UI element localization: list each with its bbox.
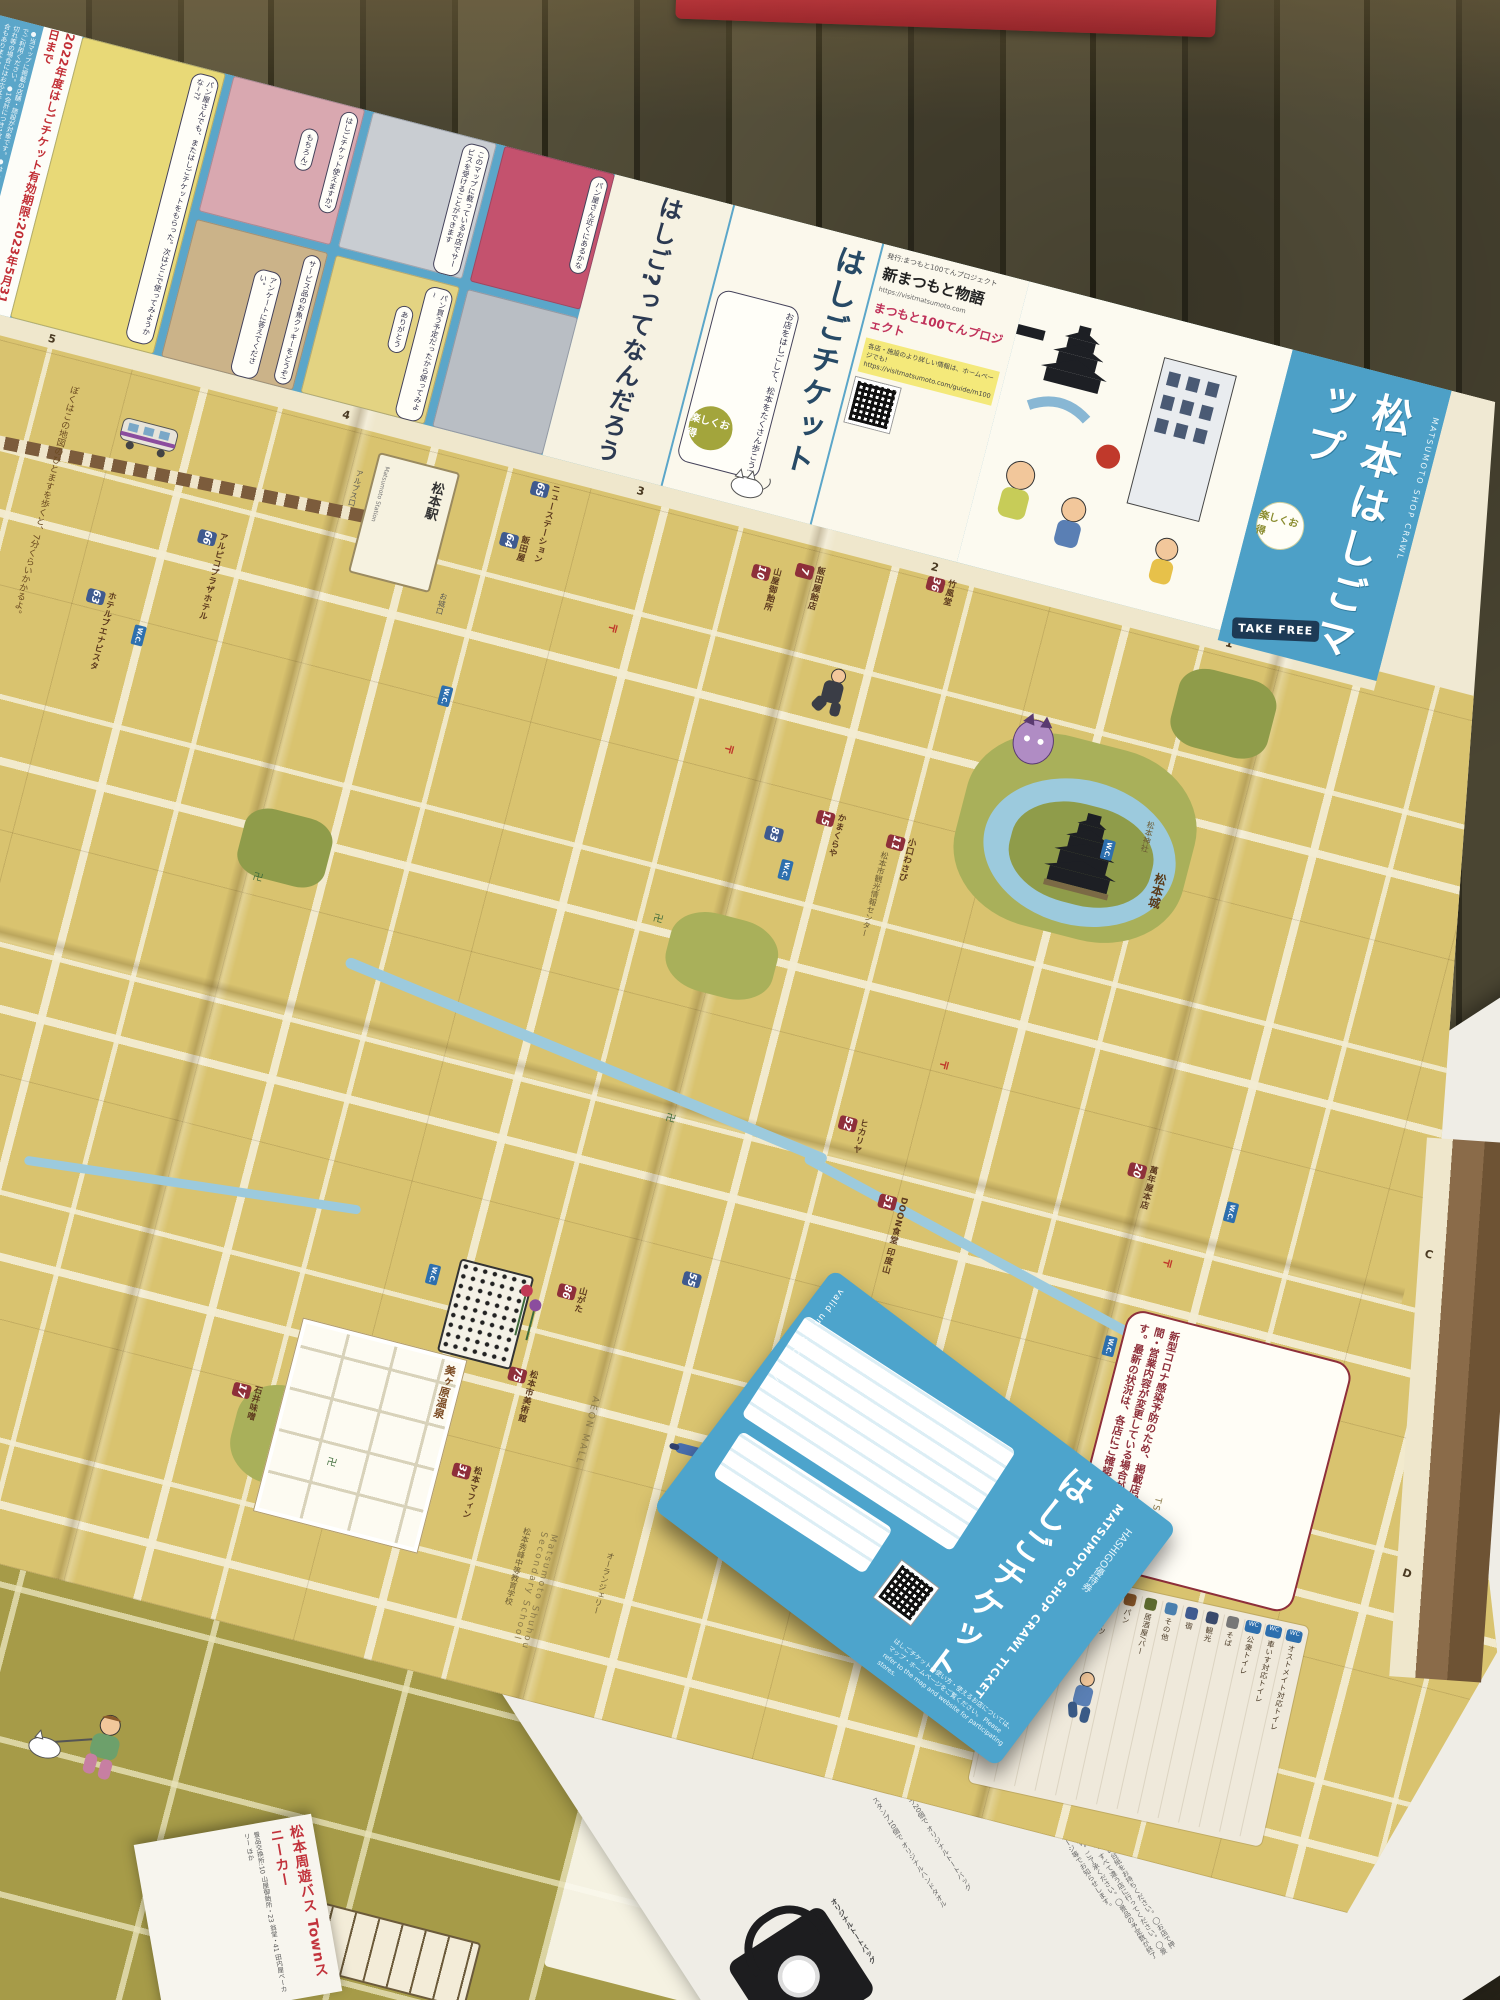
legend-icon	[1225, 1615, 1239, 1629]
legend-icon: WC	[1265, 1624, 1283, 1639]
poi-number: 64	[499, 531, 520, 549]
legend-label: 宿	[1183, 1621, 1195, 1631]
poi-number: 52	[837, 1115, 858, 1133]
poi-number: 51	[877, 1193, 898, 1211]
intro-brush-text: はしご?ってなんだろう	[586, 192, 689, 468]
poi-number: 83	[764, 825, 785, 843]
grid-number: 5	[47, 331, 58, 346]
poi-number: 75	[507, 1366, 528, 1384]
bus-info-panel: 松本周遊バス Townスニーカー 景品交換所:10 山屋御飴所・23 翁堂・41…	[134, 1814, 343, 2000]
poi-number: 86	[556, 1283, 577, 1301]
grid-number: 2	[930, 560, 941, 575]
legend-icon	[1143, 1597, 1157, 1611]
grid-letter-c: C	[1423, 1247, 1435, 1262]
legend-icon: WC	[1244, 1619, 1262, 1634]
legend-icon	[1184, 1606, 1198, 1620]
poi-number: 10	[751, 563, 772, 581]
speech-bubble: アンケートに答えてください。	[229, 267, 284, 381]
tote-bag-illustration	[726, 1904, 877, 2000]
grid-number: 3	[635, 483, 646, 498]
legend-icon	[1205, 1611, 1219, 1625]
poi-number: 17	[231, 1381, 252, 1399]
take-free-badge: TAKE FREE	[1232, 617, 1320, 642]
photo-of-matsumoto-map: 54321 松本駅 Matsumoto Station アルプス口 お城口 ぼく…	[0, 0, 1500, 2000]
dog-walker-illustration	[16, 1684, 155, 1801]
poi-number: 66	[197, 529, 218, 547]
walking-cat-illustration	[723, 464, 775, 505]
poi-number: 65	[529, 480, 550, 498]
poi-number: 63	[85, 588, 106, 606]
legend-label: そば	[1222, 1630, 1236, 1648]
poi-number: 15	[815, 809, 836, 827]
legend-label: 公衆トイレ	[1237, 1635, 1256, 1676]
station-name-en: Matsumoto Station	[370, 466, 391, 523]
poi-number: 11	[885, 834, 906, 852]
legend-icon	[1164, 1602, 1178, 1616]
legend-label: その他	[1159, 1616, 1175, 1642]
poi-number: 55	[681, 1271, 702, 1289]
poi-number: 31	[451, 1462, 472, 1480]
legend-icon: WC	[1285, 1629, 1303, 1644]
poi-number: 36	[925, 576, 946, 594]
speech-bubble: もちろん!	[292, 127, 320, 173]
poi-number: 20	[1127, 1162, 1148, 1180]
station-name: 松本駅	[419, 479, 447, 522]
legend-label: 観光	[1201, 1626, 1215, 1644]
grid-letter-d: D	[1401, 1566, 1414, 1581]
ticket-qr-code	[874, 1561, 938, 1625]
poi-83: 83	[765, 824, 783, 845]
poi-55: 55	[683, 1269, 701, 1290]
legend-label: パン	[1119, 1607, 1133, 1625]
qr-code	[844, 377, 900, 433]
onsen-label: 美ヶ原温泉	[429, 1363, 458, 1420]
poi-number: 7	[794, 562, 815, 580]
